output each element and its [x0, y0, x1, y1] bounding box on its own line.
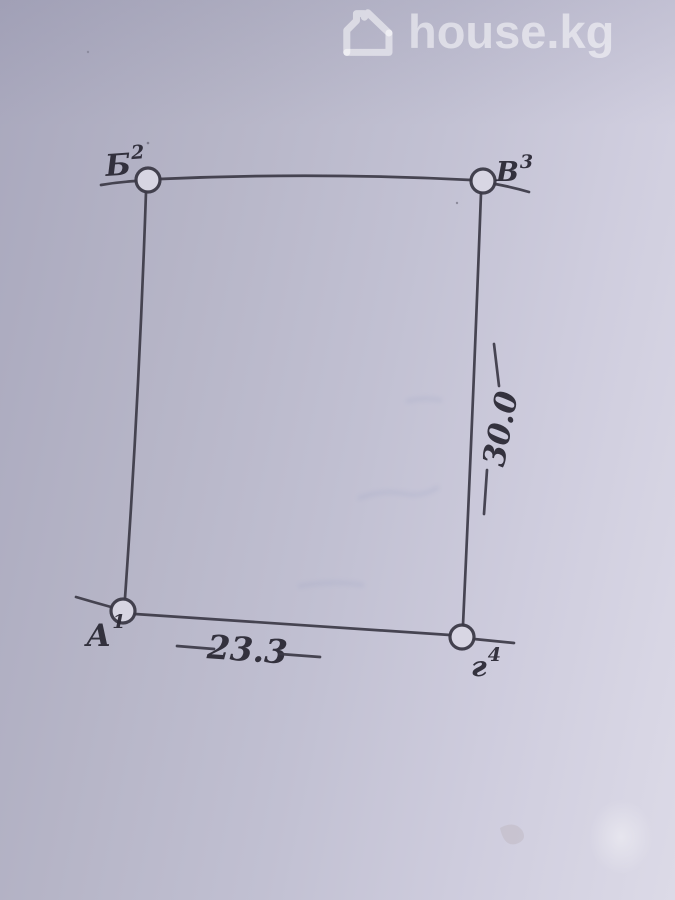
corner-letter: А	[84, 618, 111, 654]
corner-label-v3: В3	[495, 151, 533, 188]
dimension-dash-top	[494, 344, 499, 386]
corner-superscript: 4	[488, 644, 501, 666]
corner-superscript: 1	[112, 611, 125, 633]
corner-letter: Б	[103, 147, 132, 184]
dimension-right: 30.0	[476, 344, 526, 514]
corner-point-g4	[450, 625, 474, 649]
dimension-dash-bottom	[484, 470, 487, 514]
dimension-value-right: 30.0	[476, 388, 526, 469]
plot-edge-bottom	[135, 614, 450, 635]
corner-point-markers	[111, 168, 495, 649]
corner-labels: Б2 В3 А1 г4	[84, 141, 533, 683]
corner-point-b2	[136, 168, 160, 192]
bleed-mark	[360, 488, 437, 498]
bleed-mark	[408, 399, 440, 401]
plot-edge-right	[463, 193, 481, 625]
ink-speck	[456, 202, 458, 204]
ink-speck	[87, 51, 89, 53]
survey-tick-left-of-a	[76, 597, 111, 607]
corner-letter: В	[495, 157, 519, 188]
photographed-paper-background: house.kg	[0, 0, 675, 900]
corner-label-a1: А1	[84, 611, 125, 654]
corner-point-v3	[471, 169, 495, 193]
plot-sketch: Б2 В3 А1 г4 23.3 30.0	[0, 0, 675, 900]
corner-superscript: 2	[129, 141, 145, 164]
ink-speck	[147, 142, 150, 145]
dimension-bottom: 23.3	[177, 627, 320, 672]
plot-edge-top	[160, 176, 471, 180]
corner-superscript: 3	[520, 151, 533, 173]
dimension-value-bottom: 23.3	[205, 627, 289, 672]
plot-boundary-lines	[76, 176, 529, 643]
paper-smudge	[500, 824, 524, 844]
survey-tick-right-of-g	[474, 639, 514, 643]
corner-letter: г	[471, 650, 487, 683]
corner-label-g4: г4	[471, 644, 501, 683]
bleed-mark	[300, 583, 362, 586]
plot-edge-left	[125, 192, 146, 598]
